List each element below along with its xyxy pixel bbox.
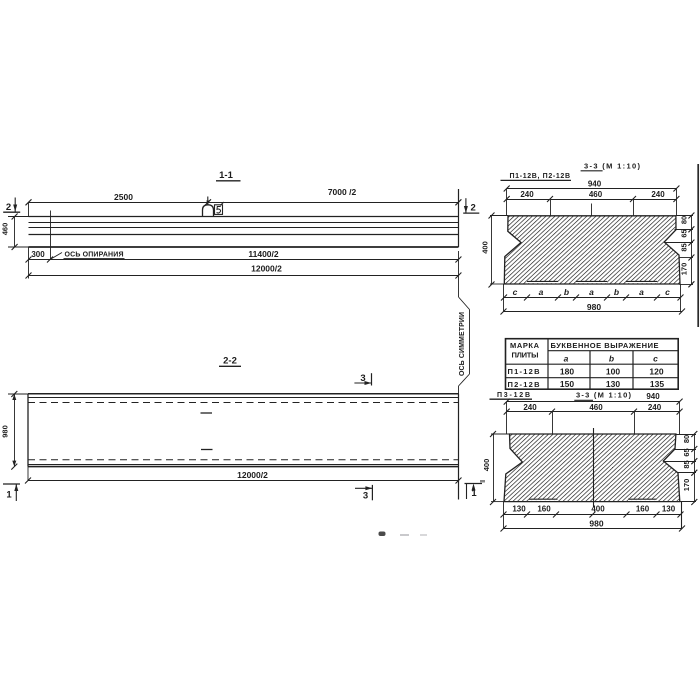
svg-text:120: 120 xyxy=(649,366,663,376)
svg-text:П3-12В: П3-12В xyxy=(497,392,530,399)
svg-text:160: 160 xyxy=(636,505,650,514)
svg-text:240: 240 xyxy=(520,190,534,199)
svg-text:a: a xyxy=(539,287,544,297)
svg-text:170: 170 xyxy=(680,263,689,276)
svg-text:7000 /2: 7000 /2 xyxy=(328,187,357,197)
svg-text:460: 460 xyxy=(1,223,10,236)
svg-text:БУКВЕННОЕ ВЫРАЖЕНИЕ: БУКВЕННОЕ ВЫРАЖЕНИЕ xyxy=(551,341,659,350)
svg-text:130: 130 xyxy=(662,505,676,514)
svg-text:2: 2 xyxy=(6,202,11,213)
svg-text:80: 80 xyxy=(680,216,689,224)
svg-text:2-2: 2-2 xyxy=(223,356,237,367)
svg-text:b: b xyxy=(614,287,619,297)
svg-text:150: 150 xyxy=(560,379,574,389)
svg-text:a: a xyxy=(564,353,569,363)
svg-text:980: 980 xyxy=(589,518,603,528)
svg-text:П1-12В: П1-12В xyxy=(508,367,541,376)
svg-text:460: 460 xyxy=(589,403,603,412)
svg-text:ПЛИТЫ: ПЛИТЫ xyxy=(512,350,539,359)
svg-text:П1-12В, П2-12В: П1-12В, П2-12В xyxy=(510,173,571,180)
svg-text:135: 135 xyxy=(650,379,664,389)
svg-text:240: 240 xyxy=(523,403,537,412)
svg-text:460: 460 xyxy=(589,190,603,199)
svg-text:a: a xyxy=(589,287,594,297)
svg-text:3: 3 xyxy=(363,491,368,502)
svg-text:240: 240 xyxy=(648,403,662,412)
svg-text:85: 85 xyxy=(680,243,689,251)
svg-text:80: 80 xyxy=(682,435,691,443)
svg-text:2500: 2500 xyxy=(114,192,133,202)
svg-text:980: 980 xyxy=(587,302,601,312)
svg-text:c: c xyxy=(513,287,518,297)
svg-text:65: 65 xyxy=(682,448,691,456)
svg-text:85: 85 xyxy=(682,460,691,468)
svg-text:170: 170 xyxy=(682,479,691,492)
svg-text:ОСЬ СИММЕТРИИ: ОСЬ СИММЕТРИИ xyxy=(459,312,466,376)
svg-text:1: 1 xyxy=(471,488,477,499)
svg-text:240: 240 xyxy=(651,190,665,199)
svg-text:c: c xyxy=(665,287,670,297)
svg-text:400: 400 xyxy=(482,459,491,472)
svg-text:ОСЬ ОПИРАНИЯ: ОСЬ ОПИРАНИЯ xyxy=(65,251,124,258)
svg-text:130: 130 xyxy=(512,505,526,514)
svg-text:11400/2: 11400/2 xyxy=(248,249,279,259)
svg-text:a: a xyxy=(639,287,644,297)
svg-text:300: 300 xyxy=(31,250,45,259)
svg-text:П2-12В: П2-12В xyxy=(508,380,541,389)
svg-text:b: b xyxy=(609,353,614,363)
svg-text:12000/2: 12000/2 xyxy=(237,470,268,480)
svg-text:3-3 (М 1:10): 3-3 (М 1:10) xyxy=(576,390,632,399)
svg-text:940: 940 xyxy=(588,179,602,188)
svg-text:160: 160 xyxy=(537,505,551,514)
svg-text:400: 400 xyxy=(481,241,490,254)
svg-text:100: 100 xyxy=(606,366,620,376)
svg-text:МАРКА: МАРКА xyxy=(510,341,540,350)
svg-text:130: 130 xyxy=(606,379,620,389)
svg-text:c: c xyxy=(653,353,658,363)
svg-text:2: 2 xyxy=(471,203,476,214)
svg-text:1-1: 1-1 xyxy=(219,170,233,181)
svg-text:1: 1 xyxy=(6,490,12,501)
svg-text:b: b xyxy=(564,287,569,297)
svg-text:980: 980 xyxy=(1,425,10,438)
svg-text:12000/2: 12000/2 xyxy=(251,264,282,274)
svg-text:940: 940 xyxy=(646,392,660,401)
svg-text:180: 180 xyxy=(560,366,574,376)
svg-text:65: 65 xyxy=(680,229,689,237)
svg-text:3-3 (М 1:10): 3-3 (М 1:10) xyxy=(584,161,641,170)
svg-text:400: 400 xyxy=(591,505,605,514)
